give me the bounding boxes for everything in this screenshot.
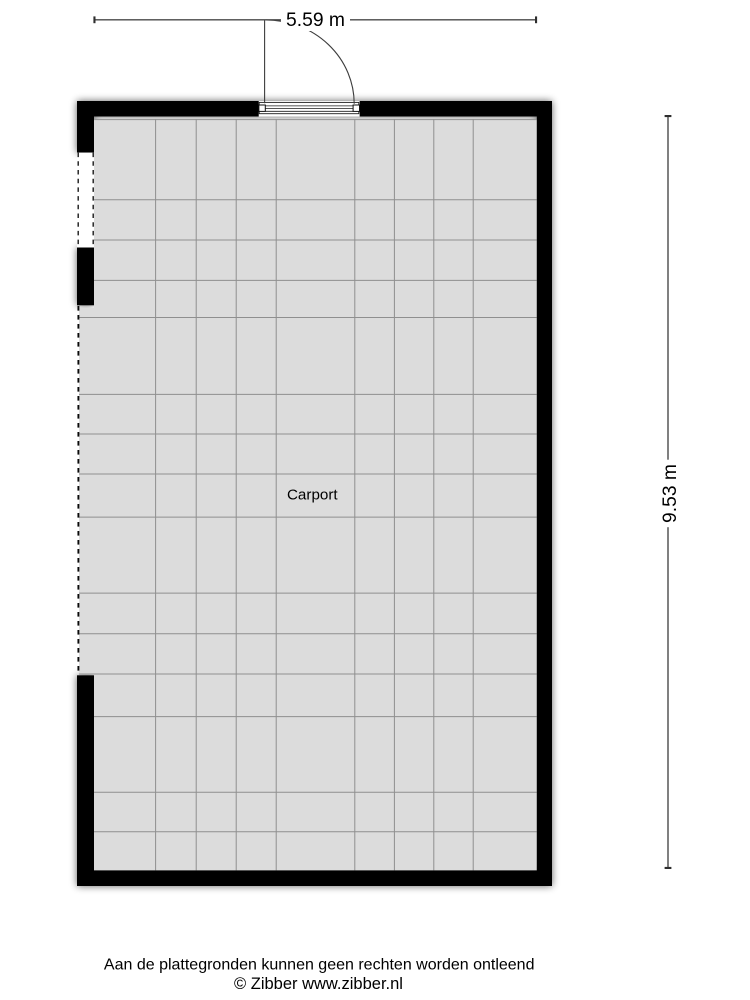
svg-text:5.59 m: 5.59 m bbox=[286, 10, 345, 31]
svg-text:Carport: Carport bbox=[287, 487, 338, 504]
svg-text:9.53 m: 9.53 m bbox=[660, 464, 681, 523]
svg-text:Aan de plattegronden kunnen ge: Aan de plattegronden kunnen geen rechten… bbox=[104, 957, 535, 974]
svg-text:© Zibber www.zibber.nl: © Zibber www.zibber.nl bbox=[234, 975, 403, 993]
